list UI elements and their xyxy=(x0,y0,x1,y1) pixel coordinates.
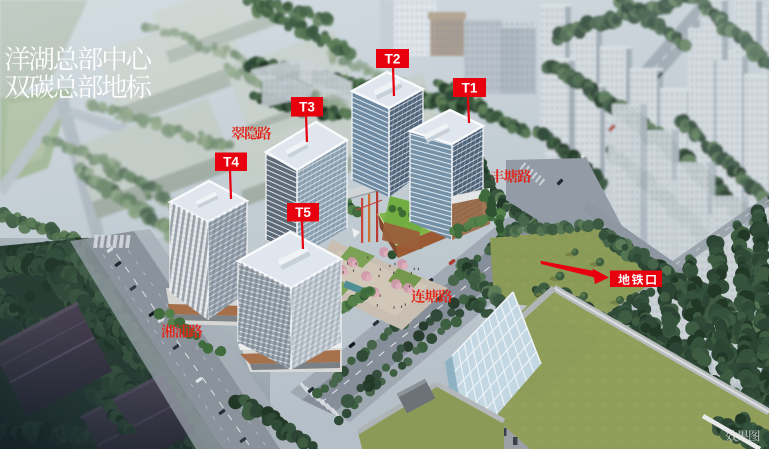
svg-text:T4: T4 xyxy=(223,155,239,170)
svg-text:T5: T5 xyxy=(295,205,311,220)
svg-text:T3: T3 xyxy=(299,100,315,115)
svg-text:T1: T1 xyxy=(462,80,478,95)
svg-text:T2: T2 xyxy=(385,51,401,66)
